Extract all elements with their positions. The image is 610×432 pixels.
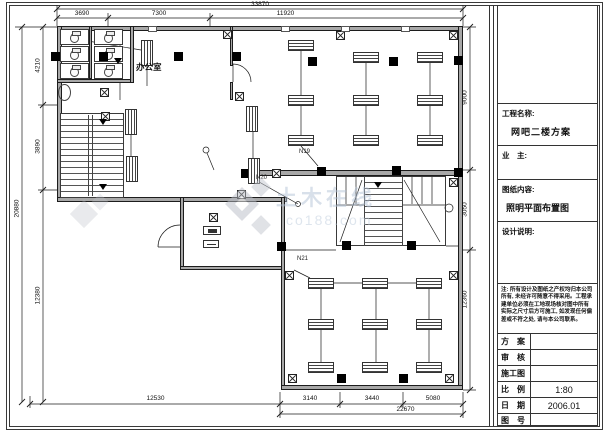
watermark-text: 土木在线 — [276, 182, 376, 212]
wall-midroom-bottom — [180, 266, 284, 270]
fluorescent-light — [126, 156, 138, 182]
toilet-stall — [94, 63, 123, 79]
fluorescent-light — [288, 95, 314, 106]
column — [454, 56, 463, 65]
column — [174, 52, 183, 61]
wall-toilet-right — [130, 26, 134, 83]
toilet-icon — [70, 67, 79, 77]
wall-toilet-bottom — [57, 79, 134, 83]
row-label: 方 案 — [498, 334, 531, 349]
watermark-diamond — [92, 194, 109, 211]
owner-label: 业 主: — [502, 150, 527, 161]
title-block-logo-box — [498, 6, 597, 104]
fluorescent-light — [416, 278, 442, 289]
title-block-row: 比 例 1:80 — [498, 382, 597, 398]
fluorescent-light — [353, 52, 379, 63]
fluorescent-light — [362, 278, 388, 289]
fluorescent-light — [308, 278, 334, 289]
watermark: 土木在线 co188.com — [228, 178, 408, 240]
fluorescent-light — [353, 135, 379, 146]
dim-top: 11920 — [258, 10, 313, 17]
ceiling-light-icon — [449, 31, 458, 40]
title-block-content: 图纸内容: 照明平面布置图 — [498, 180, 597, 222]
wall-fixture-icon — [341, 26, 350, 32]
project-name: 网吧二楼方案 — [511, 125, 571, 138]
floor-plan: 办公室 N19 N20 N21 33870 3690 7300 11920 20… — [0, 0, 492, 432]
row-value: 2006.01 — [531, 398, 597, 413]
fluorescent-light — [308, 319, 334, 330]
ceiling-light-icon — [336, 31, 345, 40]
ceiling-light-icon — [449, 271, 458, 280]
fluorescent-light — [362, 362, 388, 373]
fluorescent-light — [288, 40, 314, 51]
legend-fixture-b — [203, 240, 219, 248]
title-block-row: 方 案 — [498, 334, 597, 350]
toilet-stall — [94, 29, 123, 45]
toilet-icon — [70, 50, 79, 60]
column — [308, 57, 317, 66]
ceiling-light-icon — [445, 374, 454, 383]
watermark-tile — [72, 196, 132, 236]
title-block-copyright-note: 注: 所有设计及图纸之产权均归本公司所有, 未经许可随意不得采用。工程承建单位必… — [498, 284, 597, 334]
design-notes-label: 设计说明: — [502, 226, 535, 237]
title-block-separator — [489, 5, 490, 426]
title-block-row: 日 期 2006.01 — [498, 398, 597, 414]
project-label: 工程名称: — [502, 108, 535, 119]
fluorescent-light — [417, 52, 443, 63]
column — [454, 168, 463, 177]
dim-left: 3890 — [35, 127, 44, 167]
fluorescent-light — [416, 362, 442, 373]
dim-bottom: 5080 — [415, 395, 451, 402]
fluorescent-light — [246, 106, 258, 132]
title-block-row: 审 核 — [498, 350, 597, 366]
stair-rail — [88, 115, 89, 196]
watermark-domain: co188.com — [286, 212, 372, 228]
ceiling-light-icon — [235, 92, 244, 101]
column — [389, 57, 398, 66]
dim-bottom: 3440 — [354, 395, 390, 402]
toilet-stall — [60, 63, 89, 79]
fluorescent-light — [125, 109, 137, 135]
row-value: 1:80 — [531, 382, 597, 397]
title-block-row: 施工图 — [498, 366, 597, 382]
row-label: 施工图 — [498, 366, 531, 381]
dim-left: 12380 — [35, 276, 44, 316]
toilet-icon — [104, 67, 113, 77]
ceiling-light-icon — [285, 271, 294, 280]
legend-fixture-a — [203, 226, 221, 235]
dim-bottom: 12530 — [133, 395, 178, 402]
row-value — [531, 366, 597, 381]
title-block-separator — [493, 5, 494, 426]
toilet-stall — [60, 29, 89, 45]
fluorescent-light — [417, 95, 443, 106]
circuit-label: N21 — [297, 256, 308, 262]
row-label: 图 号 — [498, 414, 531, 427]
column — [337, 374, 346, 383]
ceiling-light-icon — [100, 88, 109, 97]
wall-stall-divider — [89, 26, 92, 79]
column — [99, 52, 108, 61]
dim-right: 9000 — [462, 78, 471, 118]
pendant-lamp-icon — [99, 184, 107, 190]
dim-bottom-subtotal: 22670 — [383, 406, 428, 413]
toilet-icon — [104, 33, 113, 43]
fluorescent-light — [416, 319, 442, 330]
circuit-label: N19 — [299, 149, 310, 155]
column — [277, 242, 286, 251]
row-value — [531, 414, 597, 427]
wall-fixture-icon — [401, 26, 410, 32]
pendant-lamp-icon — [99, 119, 107, 125]
sink-icon — [58, 84, 71, 101]
row-label: 审 核 — [498, 350, 531, 365]
stair-rail — [92, 115, 93, 196]
column — [342, 241, 351, 250]
row-value — [531, 334, 597, 349]
column — [232, 52, 241, 61]
title-block: 工程名称: 网吧二楼方案 业 主: 图纸内容: 照明平面布置图 设计说明: 注:… — [497, 5, 598, 426]
column — [392, 166, 401, 175]
title-block-project: 工程名称: 网吧二楼方案 — [498, 104, 597, 146]
dim-right: 12360 — [462, 280, 471, 320]
wall-office-right-lower — [230, 82, 233, 100]
fluorescent-light — [288, 135, 314, 146]
fluorescent-light — [308, 362, 334, 373]
legend-fixture-a-fill — [208, 229, 217, 233]
cad-sheet: { "title_block": { "project_label": "工程名… — [0, 0, 610, 432]
drawing-name: 照明平面布置图 — [506, 201, 569, 214]
ceiling-light-icon — [209, 213, 218, 222]
dim-left: 4210 — [35, 46, 44, 86]
watermark-diamond — [251, 177, 271, 197]
ceiling-light-icon — [449, 178, 458, 187]
dim-bottom: 3140 — [292, 395, 328, 402]
row-label: 日 期 — [498, 398, 531, 413]
pendant-lamp-icon — [114, 58, 122, 64]
toilet-icon — [70, 33, 79, 43]
dim-left-total: 20880 — [14, 189, 23, 229]
room-label-office: 办公室 — [136, 61, 162, 73]
content-label: 图纸内容: — [502, 184, 535, 195]
ceiling-light-icon — [272, 169, 281, 178]
dim-top: 7300 — [139, 10, 179, 17]
dim-top-total: 33870 — [225, 1, 295, 8]
column — [51, 52, 60, 61]
wall-fixture-icon — [281, 26, 290, 32]
column — [399, 374, 408, 383]
row-value — [531, 350, 597, 365]
dim-top: 3690 — [62, 10, 102, 17]
watermark-diamond — [251, 215, 271, 235]
fluorescent-light — [353, 95, 379, 106]
legend-fixture-b-line — [207, 244, 216, 245]
fluorescent-light — [362, 319, 388, 330]
title-block-row: 图 号 — [498, 414, 597, 427]
dim-right: 3050 — [462, 190, 471, 230]
wall-midroom-left — [180, 197, 184, 270]
title-block-design-notes: 设计说明: — [498, 222, 597, 284]
fluorescent-light — [417, 135, 443, 146]
ceiling-light-icon — [288, 374, 297, 383]
title-block-owner: 业 主: — [498, 146, 597, 180]
copyright-note-text: 注: 所有设计及图纸之产权均归本公司所有, 未经许可随意不得采用。工程承建单位必… — [501, 287, 594, 324]
column — [317, 167, 326, 176]
column — [407, 241, 416, 250]
toilet-stall — [60, 46, 89, 62]
row-label: 比 例 — [498, 382, 531, 397]
wall-fixture-icon — [148, 26, 157, 32]
wall-lowerwing-bottom — [281, 385, 463, 390]
ceiling-light-icon — [223, 30, 232, 39]
